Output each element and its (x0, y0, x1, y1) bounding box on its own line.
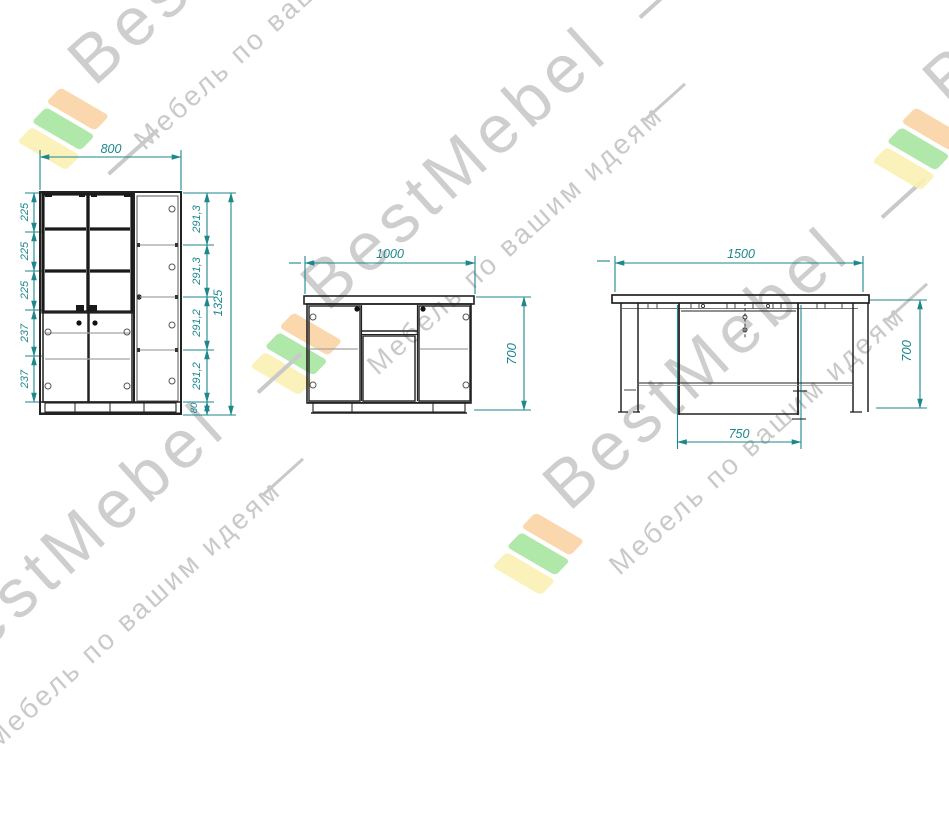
furniture-drawing: 800 225 225 225 237 237 291,3 291,3 291,… (0, 0, 949, 600)
tumba-front-view: 1000 700 (289, 247, 531, 413)
door-handle (76, 320, 81, 325)
dim-table-inner-width: 750 (729, 427, 750, 441)
dim-cabinet-left-4: 237 (19, 323, 31, 343)
dim-cabinet-plinth: 80 (189, 402, 200, 413)
dim-cabinet-right-3: 291,2 (191, 309, 203, 338)
door-handle (420, 306, 425, 311)
door-handle (92, 320, 97, 325)
dim-cabinet-right-4: 291,2 (191, 362, 203, 391)
glass-door-handle (76, 305, 84, 312)
table-front-view: 1500 700 750 (597, 247, 927, 449)
technical-drawing-page: { "watermark": { "brand": "BestMebel", "… (0, 0, 949, 600)
bookcase-front-view: 800 225 225 225 237 237 291,3 291,3 291,… (19, 142, 236, 415)
dim-table-width: 1500 (727, 247, 755, 261)
glass-door-handle (89, 305, 97, 312)
dim-cabinet-right-1: 291,3 (191, 204, 203, 233)
dim-cabinet-left-5: 237 (19, 369, 31, 389)
door-handle (354, 306, 359, 311)
dim-cabinet-right-2: 291,3 (191, 256, 203, 285)
dim-cabinet-left-3: 225 (19, 280, 31, 300)
dim-tumba-width: 1000 (376, 247, 404, 261)
dim-cabinet-width: 800 (101, 142, 122, 156)
dim-cabinet-left-1: 225 (19, 202, 31, 222)
dim-tumba-height: 700 (504, 342, 519, 364)
dim-cabinet-height: 1325 (211, 289, 225, 316)
dim-cabinet-left-2: 225 (19, 241, 31, 261)
dim-table-height: 700 (899, 339, 914, 361)
